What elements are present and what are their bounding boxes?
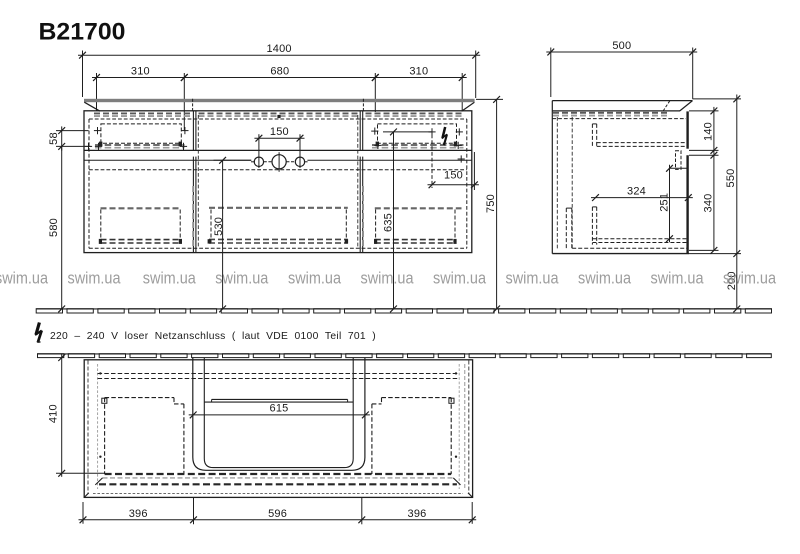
svg-text:310: 310 xyxy=(409,65,428,77)
svg-text:B21700: B21700 xyxy=(39,19,126,46)
svg-text:swim.ua: swim.ua xyxy=(651,269,705,287)
svg-text:swim.ua: swim.ua xyxy=(143,269,197,287)
svg-text:220 – 240 V loser Netzans: 220 – 240 V loser Netzanschluss ( laut V… xyxy=(50,330,376,342)
svg-text:swim.ua: swim.ua xyxy=(0,269,49,287)
svg-text:150: 150 xyxy=(270,126,289,138)
svg-text:396: 396 xyxy=(408,508,427,520)
svg-text:swim.ua: swim.ua xyxy=(578,269,632,287)
svg-text:swim.ua: swim.ua xyxy=(723,269,777,287)
svg-text:58: 58 xyxy=(48,132,60,145)
svg-text:swim.ua: swim.ua xyxy=(215,269,269,287)
svg-text:251: 251 xyxy=(659,193,671,212)
svg-text:swim.ua: swim.ua xyxy=(288,269,342,287)
svg-text:530: 530 xyxy=(213,217,225,236)
svg-text:swim.ua: swim.ua xyxy=(433,269,487,287)
svg-text:580: 580 xyxy=(48,218,60,237)
svg-text:310: 310 xyxy=(131,65,150,77)
svg-text:396: 396 xyxy=(129,508,148,520)
svg-text:150: 150 xyxy=(444,170,463,182)
svg-text:410: 410 xyxy=(48,404,60,423)
svg-text:swim.ua: swim.ua xyxy=(361,269,415,287)
svg-text:550: 550 xyxy=(725,169,737,188)
svg-text:1400: 1400 xyxy=(266,43,291,55)
svg-text:750: 750 xyxy=(485,194,497,213)
svg-text:635: 635 xyxy=(382,213,394,232)
svg-text:615: 615 xyxy=(270,403,289,415)
svg-text:swim.ua: swim.ua xyxy=(506,269,560,287)
svg-text:340: 340 xyxy=(703,194,715,213)
svg-text:500: 500 xyxy=(612,40,631,52)
svg-text:324: 324 xyxy=(627,185,646,197)
svg-text:140: 140 xyxy=(703,122,715,141)
svg-text:680: 680 xyxy=(270,65,289,77)
svg-text:swim.ua: swim.ua xyxy=(68,269,122,287)
svg-text:596: 596 xyxy=(268,508,287,520)
